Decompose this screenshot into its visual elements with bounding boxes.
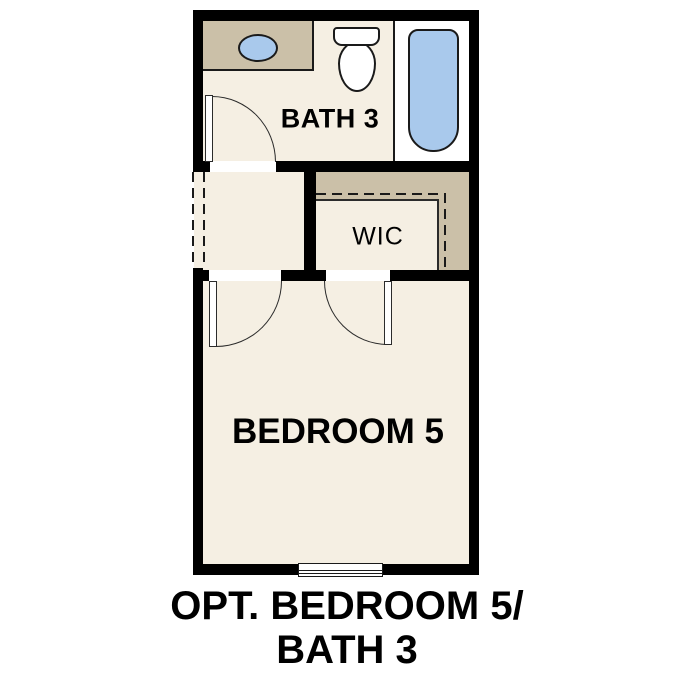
bath-room-label: BATH 3 [281, 104, 380, 135]
window-mullion-line-1 [299, 570, 382, 571]
top-exterior-wall [193, 10, 479, 21]
bathtub-icon [408, 29, 459, 152]
floor-plan-canvas: BATH 3 WIC BEDROOM 5 OPT. BEDROOM 5/ BAT… [0, 0, 687, 687]
left-exterior-wall-upper [193, 10, 203, 172]
plan-caption-line-2: BATH 3 [170, 628, 523, 672]
sink-icon [238, 34, 278, 62]
bedroom-north-wall-right [390, 270, 469, 281]
wic-room-label: WIC [352, 223, 404, 252]
closet-rod-dashed-line-horizontal [316, 193, 446, 195]
closet-rod-dashed-line-vertical [444, 193, 446, 270]
bath-doorway-gap [210, 161, 276, 172]
hallway-floor [194, 172, 304, 270]
plan-caption-line-1: OPT. BEDROOM 5/ [170, 584, 523, 628]
bedroom-north-wall-center [281, 270, 326, 281]
right-exterior-wall [469, 10, 479, 575]
bedroom-north-wall-left-stub [193, 270, 209, 281]
left-exterior-wall-lower [193, 268, 203, 575]
toilet-tank-icon [333, 27, 380, 46]
bedroom-door-panel [209, 281, 217, 347]
hall-wic-divider-wall [304, 161, 316, 281]
bath-door-panel [205, 95, 213, 162]
optional-opening-dashed-line-inner [203, 172, 205, 266]
bedroom-room-label: BEDROOM 5 [232, 412, 444, 452]
wic-door-panel [384, 281, 392, 345]
plan-caption: OPT. BEDROOM 5/ BATH 3 [170, 584, 523, 672]
optional-opening-dashed-line-outer [192, 172, 194, 266]
wic-doorway-gap [326, 270, 390, 281]
bedroom-doorway-gap [209, 270, 281, 281]
window-icon [298, 563, 383, 577]
window-mullion-line-2 [299, 573, 382, 574]
bath-south-wall-left-stub [193, 161, 210, 172]
